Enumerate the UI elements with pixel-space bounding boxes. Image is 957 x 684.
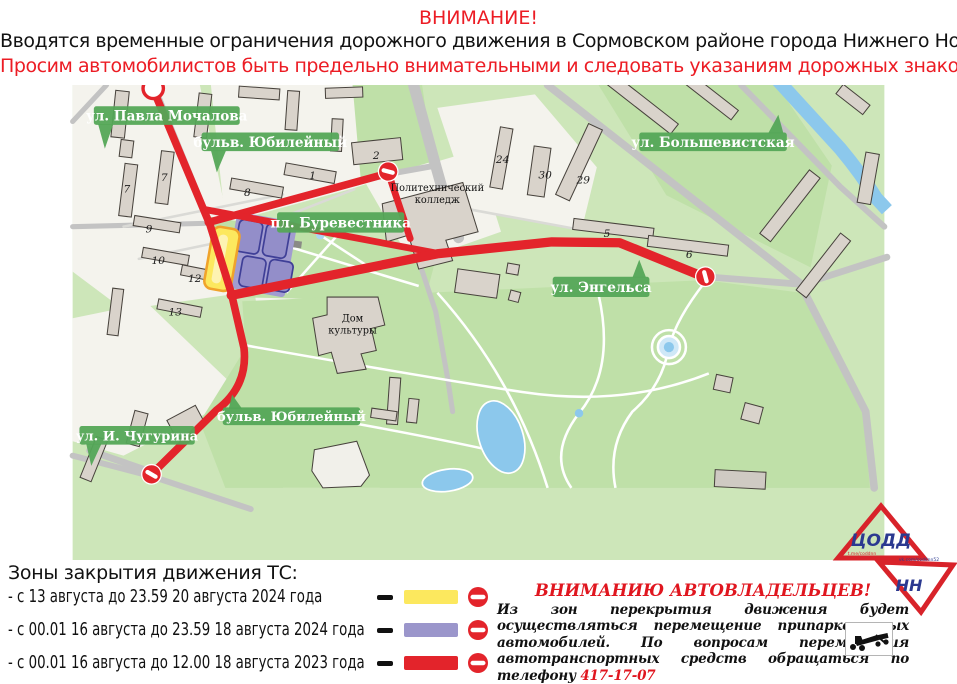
svg-text:ул. Большевистская: ул. Большевистская xyxy=(631,135,794,151)
svg-text:6: 6 xyxy=(686,249,693,261)
svg-text:8: 8 xyxy=(244,187,251,199)
city-map: ул. Павла Мочалова бульв. Юбилейный ул. … xyxy=(0,85,957,560)
no-entry-icon xyxy=(467,652,489,674)
svg-text:пл. Буревестника: пл. Буревестника xyxy=(270,216,411,232)
header: ВНИМАНИЕ! Вводятся временные ограничения… xyxy=(0,0,957,85)
no-entry-icon xyxy=(467,619,489,641)
legend-row-purple: - с 00.01 16 августа до 23.59 18 августа… xyxy=(0,619,520,645)
svg-text:бульв. Юбилейный: бульв. Юбилейный xyxy=(193,135,347,151)
header-restrictions-text: Вводятся временные ограничения дорожного… xyxy=(0,30,957,52)
logo-nn-text: НН xyxy=(896,576,923,595)
svg-text:Политехнический: Политехнический xyxy=(391,183,485,194)
header-request-text: Просим автомобилистов быть предельно вни… xyxy=(0,55,957,77)
svg-text:бульв. Юбилейный: бульв. Юбилейный xyxy=(217,410,366,425)
street-label-burevestnika: пл. Буревестника xyxy=(270,212,411,232)
svg-text:24: 24 xyxy=(495,154,509,166)
notice-phone: 417-17-07 xyxy=(580,668,655,684)
legend-title: Зоны закрытия движения ТС: xyxy=(8,562,298,584)
svg-text:12: 12 xyxy=(188,273,202,285)
legend-row-yellow: - с 13 августа до 23.59 20 августа 2024 … xyxy=(0,586,520,612)
svg-text:7: 7 xyxy=(161,172,168,184)
bottom-panel: Зоны закрытия движения ТС: - с 13 август… xyxy=(0,560,957,682)
legend-label: - с 00.01 16 августа до 12.00 18 августа… xyxy=(8,652,365,673)
codd-nn-logo: ЦОДД t.me/coddnn vk.com/coddnn52 НН xyxy=(818,496,957,638)
legend-row-red: - с 00.01 16 августа до 12.00 18 августа… xyxy=(0,652,520,678)
route-start-ring xyxy=(143,85,163,99)
svg-text:колледж: колледж xyxy=(415,195,460,206)
svg-text:13: 13 xyxy=(169,307,183,319)
logo-telegram-link: t.me/coddnn xyxy=(848,551,877,557)
svg-text:9: 9 xyxy=(146,224,153,236)
legend-swatch-yellow xyxy=(404,590,458,604)
legend-dash xyxy=(377,628,393,633)
logo-codd-text: ЦОДД xyxy=(851,531,912,551)
svg-text:ул. Павла Мочалова: ул. Павла Мочалова xyxy=(86,109,248,125)
svg-text:10: 10 xyxy=(152,255,166,267)
no-entry-icon xyxy=(467,586,489,608)
svg-text:1: 1 xyxy=(309,170,316,182)
legend-label: - с 13 августа до 23.59 20 августа 2024 … xyxy=(8,586,322,607)
svg-text:5: 5 xyxy=(604,228,611,240)
svg-text:ул. И. Чугурина: ул. И. Чугурина xyxy=(76,429,199,444)
logo-vk-link: vk.com/coddnn52 xyxy=(899,557,939,563)
svg-text:7: 7 xyxy=(124,184,131,196)
svg-text:культуры: культуры xyxy=(328,326,377,337)
header-attention: ВНИМАНИЕ! xyxy=(0,7,957,29)
legend-swatch-red xyxy=(404,656,458,670)
svg-text:29: 29 xyxy=(576,174,591,186)
svg-text:Дом: Дом xyxy=(342,314,364,325)
legend-label: - с 00.01 16 августа до 23.59 18 августа… xyxy=(8,619,365,640)
legend-swatch-purple xyxy=(404,623,458,637)
legend-dash xyxy=(377,661,393,666)
svg-text:30: 30 xyxy=(538,169,552,181)
svg-text:2: 2 xyxy=(372,150,380,162)
svg-text:ул. Энгельса: ул. Энгельса xyxy=(550,280,651,296)
legend-dash xyxy=(377,595,393,600)
